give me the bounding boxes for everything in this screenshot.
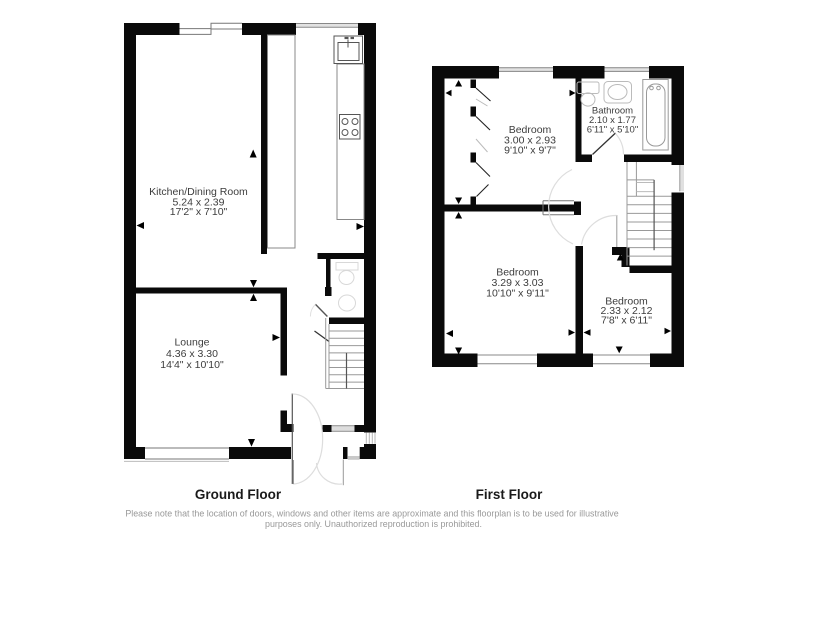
svg-text:7'8" x 6'11": 7'8" x 6'11" [601,315,652,327]
svg-text:14'4" x 10'10": 14'4" x 10'10" [160,359,224,371]
svg-text:10'10" x 9'11": 10'10" x 9'11" [486,287,549,299]
svg-text:First Floor: First Floor [476,487,543,502]
svg-text:Lounge: Lounge [174,336,209,348]
svg-text:6'11" x 5'10": 6'11" x 5'10" [587,125,638,136]
svg-text:purposes only. Unauthorized re: purposes only. Unauthorized reproduction… [265,519,482,529]
svg-text:Please note that the location: Please note that the location of doors, … [125,508,618,518]
svg-text:Ground Floor: Ground Floor [195,487,282,502]
svg-text:17'2" x 7'10": 17'2" x 7'10" [170,206,228,218]
svg-text:9'10" x 9'7": 9'10" x 9'7" [504,144,556,156]
